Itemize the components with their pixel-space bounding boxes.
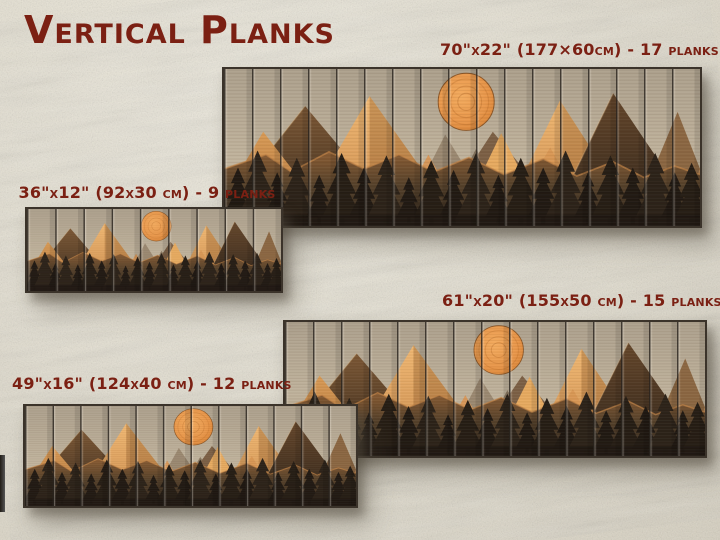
size-label-36x12: 36"x12" (92x30 cm) - 9 planks (12, 183, 282, 202)
wood-art-panel-70x22 (222, 67, 702, 228)
size-label-70x22: 70"x22" (177×60cm) - 17 planks (440, 40, 708, 59)
plank-dividers (27, 209, 281, 291)
cropped-panel-edge (0, 455, 5, 512)
wood-art-panel-49x16 (23, 404, 358, 508)
plank-dividers (224, 69, 700, 226)
plank-dividers (25, 406, 356, 506)
page-title: Vertical Planks (24, 8, 335, 52)
wood-art-panel-36x12 (25, 207, 283, 293)
product-collage: Vertical Planks 70"x22" (177×60cm) - 17 … (0, 0, 720, 540)
size-label-61x20: 61"x20" (155x50 cm) - 15 planks (442, 291, 714, 310)
size-label-49x16: 49"x16" (124x40 cm) - 12 planks (12, 374, 278, 393)
